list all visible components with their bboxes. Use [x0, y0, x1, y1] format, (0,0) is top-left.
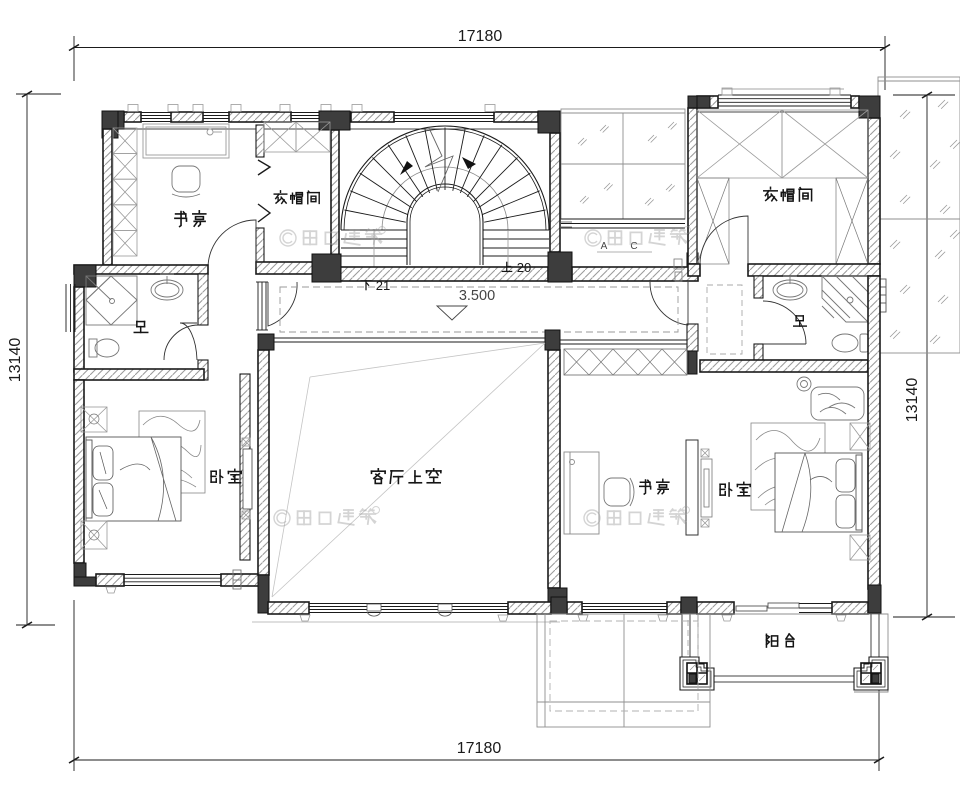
svg-text:3.500: 3.500: [459, 288, 495, 304]
svg-text:20: 20: [517, 260, 531, 275]
svg-text:17180: 17180: [457, 740, 502, 757]
svg-text:21: 21: [376, 278, 390, 293]
svg-text:17180: 17180: [458, 28, 503, 45]
svg-text:A: A: [601, 241, 608, 252]
svg-text:13140: 13140: [904, 378, 921, 423]
svg-text:C: C: [630, 241, 637, 252]
svg-text:13140: 13140: [7, 338, 24, 383]
